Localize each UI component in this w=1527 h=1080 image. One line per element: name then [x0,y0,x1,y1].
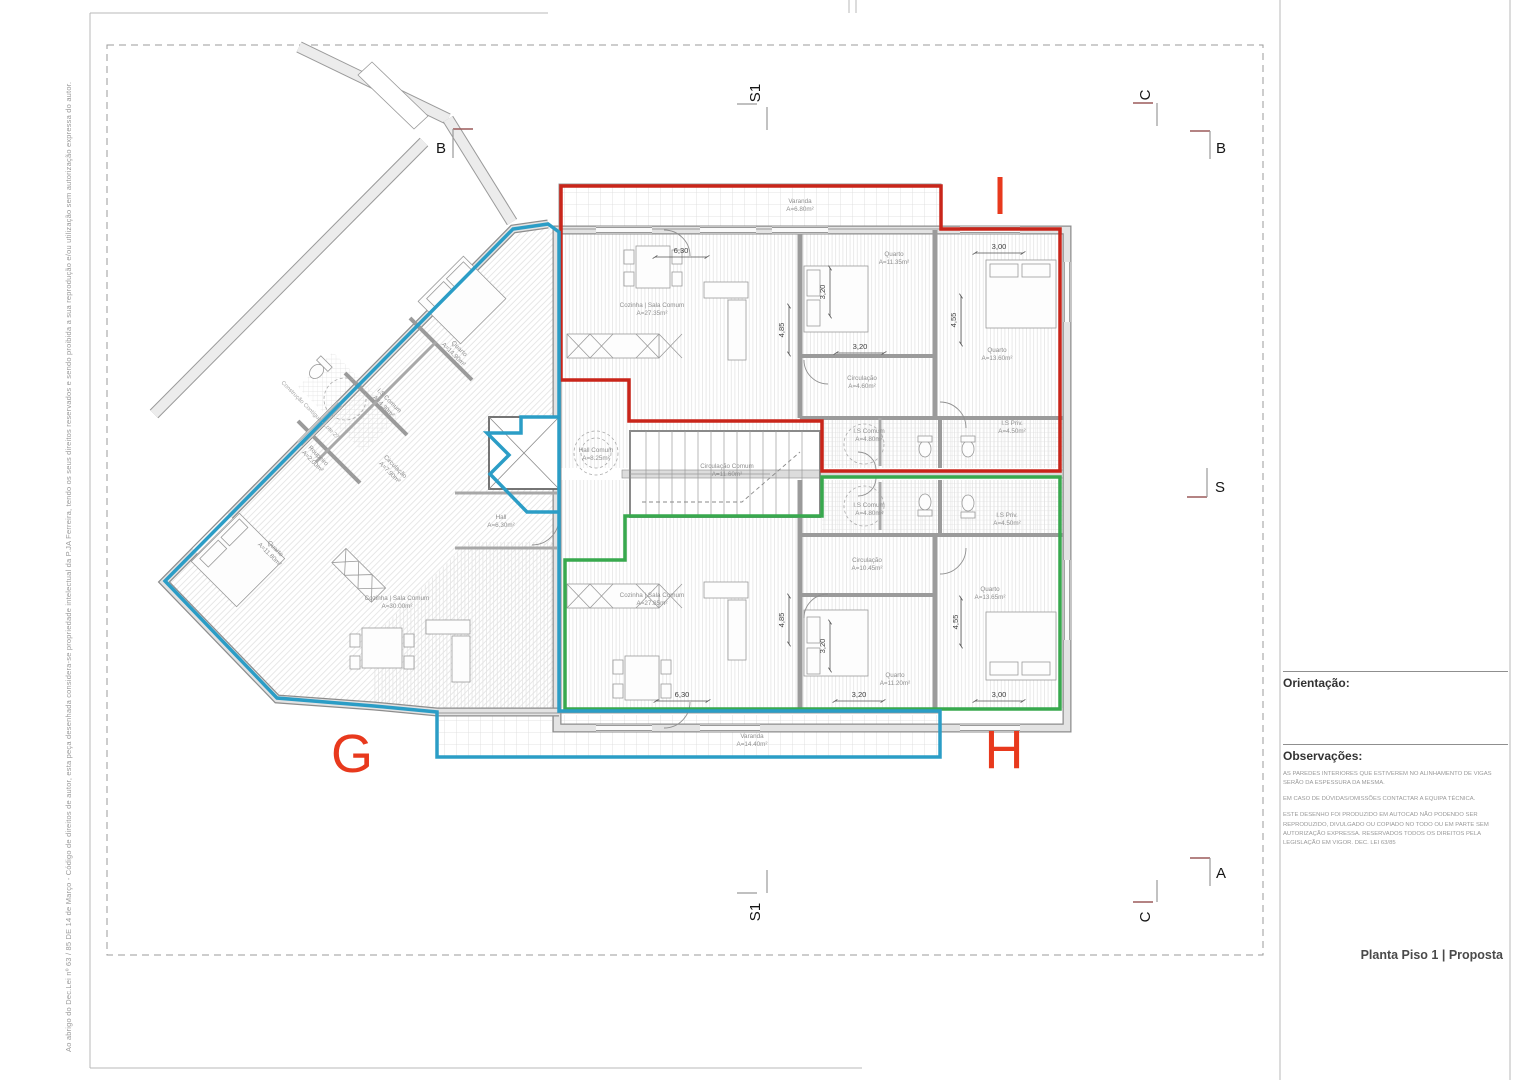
dimension-label: 4,55 [949,313,958,328]
dimension-label: 4,85 [777,613,786,628]
titleblock-rule [1283,744,1508,745]
dimension-label: 4,55 [951,615,960,630]
dimension-label: 3,20 [818,639,827,654]
section-mark-a: A [1216,865,1226,882]
room-label: I.S Priv.A=4.50m² [993,512,1020,527]
observations-heading: Observações: [1283,749,1507,763]
dimension-label: 6,30 [674,246,689,255]
drawing-sheet: VarandaA=6.80m² Cozinha | Sala ComumA=27… [0,0,1527,1080]
room-label: Hall ComumA=8.25m² [579,447,614,462]
room-label: CirculaçãoA=10.45m² [852,557,883,572]
dimension-label: 3,20 [852,690,867,699]
floor-plan-canvas: VarandaA=6.80m² Cozinha | Sala ComumA=27… [0,0,1527,1080]
section-mark-b-left: B [436,140,446,157]
room-label: VarandaA=14.40m² [737,733,768,748]
observation-note: ESTE DESENHO FOI PRODUZIDO EM AUTOCAD NÃ… [1283,811,1507,848]
observations-notes: AS PAREDES INTERIORES QUE ESTIVEREM NO A… [1283,770,1507,855]
copyright-notice: Ao abrigo do Dec.Lei nº 63 / 85 DE 14 de… [64,52,73,1052]
room-label: I.S Priv.A=4.50m² [998,420,1025,435]
elevator [489,417,559,489]
observation-note: AS PAREDES INTERIORES QUE ESTIVEREM NO A… [1283,770,1507,788]
unit-letter-h: H [985,720,1024,780]
dimension-label: 3,00 [992,242,1007,251]
dimension-label: 3,20 [818,285,827,300]
section-mark-s: S [1215,479,1225,496]
dimension-label: 3,00 [992,690,1007,699]
dimension-label: 3,20 [853,342,868,351]
section-mark-s1-top: S1 [747,84,764,102]
dimension-label: 6,30 [675,690,690,699]
dimension-label: 4,85 [777,323,786,338]
section-mark-b-right: B [1216,140,1226,157]
titleblock-rule [1283,671,1508,672]
section-mark-s1-bottom: S1 [747,903,764,921]
room-label: CirculaçãoA=4.60m² [847,375,877,390]
sheet-title: Planta Piso 1 | Proposta [1283,948,1503,962]
orientation-heading: Orientação: [1283,676,1507,690]
room-label: VarandaA=6.80m² [786,198,813,213]
unit-letter-g: G [331,724,373,784]
observation-note: EM CASO DE DÚVIDAS/OMISSÕES CONTACTAR A … [1283,795,1507,804]
room-label: I.S ComumA=4.80m² [853,502,885,517]
unit-letter-i: I [992,166,1007,226]
room-label: I.S ComumA=4.80m² [853,428,885,443]
section-mark-c-top: C [1137,89,1154,100]
section-mark-c-bottom: C [1137,911,1154,922]
